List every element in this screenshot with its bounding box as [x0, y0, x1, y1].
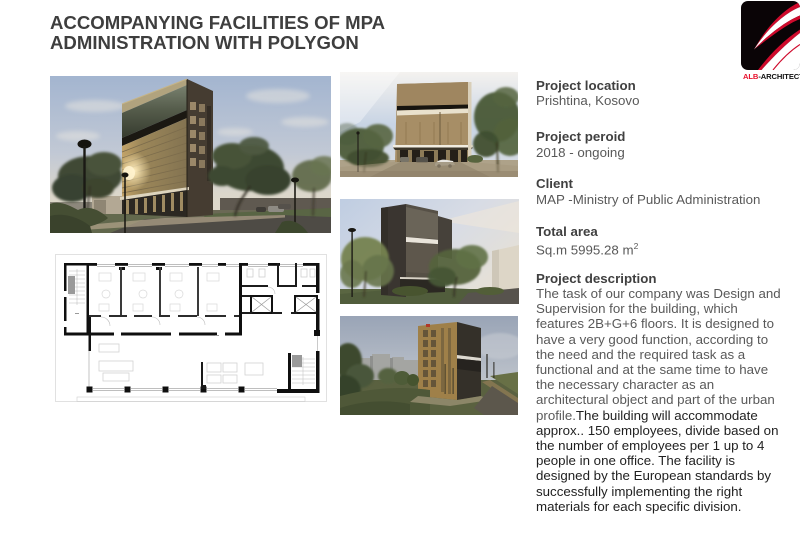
svg-text:ALB-ARCHITECT: ALB-ARCHITECT — [743, 72, 800, 81]
